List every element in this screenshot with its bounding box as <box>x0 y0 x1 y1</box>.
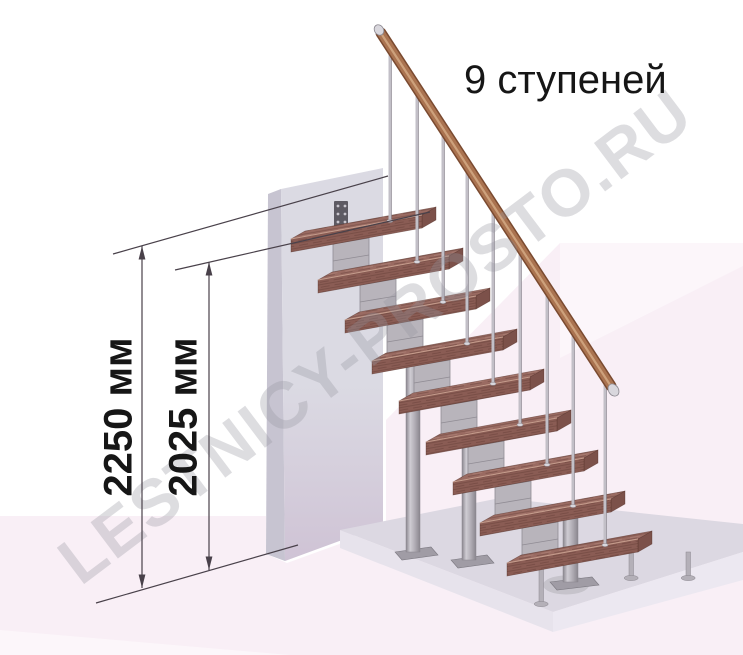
extension-line-top-2250 <box>113 176 388 254</box>
steps-count-label: 9 ступеней <box>464 58 667 103</box>
extension-line-top-2025 <box>175 212 430 270</box>
arrow-up-icon <box>139 246 146 260</box>
arrow-down-icon <box>206 557 213 571</box>
arrow-up-icon <box>206 262 213 276</box>
dimension-label-total-height: 2250 мм <box>97 337 142 496</box>
arrow-down-icon <box>139 575 146 589</box>
dimension-label-top-step-height: 2025 мм <box>162 337 207 496</box>
extension-lines <box>96 176 430 603</box>
staircase-diagram-canvas: LESTNICY-PROSTO.RU 9 ступеней 2250 мм 20… <box>0 0 743 655</box>
dimension-line-2025 <box>206 262 213 570</box>
extension-line-floor <box>96 545 298 603</box>
